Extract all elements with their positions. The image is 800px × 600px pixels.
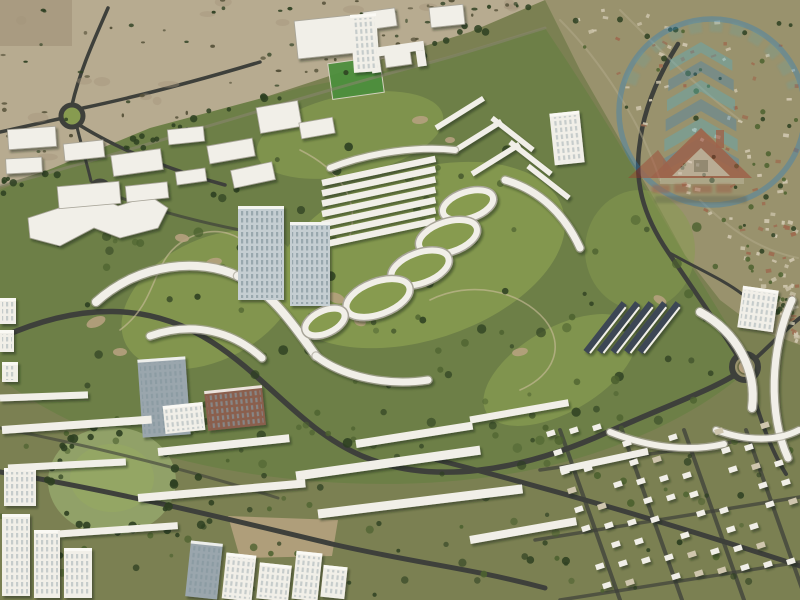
tree xyxy=(527,392,531,396)
tree xyxy=(42,170,49,177)
script-blob xyxy=(674,184,688,193)
desert-shrub xyxy=(175,116,178,118)
tree xyxy=(704,493,709,498)
tree xyxy=(756,472,761,477)
warehouse-building xyxy=(6,157,43,174)
tree xyxy=(573,18,579,24)
villa-roof xyxy=(601,9,605,13)
tree xyxy=(44,476,51,483)
tree xyxy=(759,249,764,254)
tree xyxy=(207,518,213,524)
tree xyxy=(746,245,749,248)
tree xyxy=(366,526,374,534)
desert-shrub xyxy=(78,71,84,74)
tree xyxy=(437,367,443,373)
tree xyxy=(278,345,288,355)
tree xyxy=(297,206,305,214)
house-window xyxy=(694,160,708,172)
tree xyxy=(568,578,574,584)
tree xyxy=(167,296,173,302)
villa-roof xyxy=(757,174,762,177)
tree xyxy=(752,163,755,166)
tree xyxy=(251,370,260,379)
tree xyxy=(513,443,523,453)
tree xyxy=(692,222,702,232)
desert-shrub xyxy=(334,58,337,61)
desert-shrub xyxy=(23,61,27,63)
tree xyxy=(372,593,376,597)
desert-shrub xyxy=(84,75,90,78)
tree xyxy=(54,171,61,178)
tree xyxy=(583,45,586,48)
tree xyxy=(314,410,320,416)
tree xyxy=(684,289,693,298)
villa-roof xyxy=(762,202,766,205)
desert-shrub xyxy=(41,111,47,113)
tree xyxy=(764,163,769,168)
tree xyxy=(698,498,705,505)
villa-roof xyxy=(795,284,799,288)
desert-shrub xyxy=(110,27,113,30)
tree xyxy=(103,264,110,271)
tree xyxy=(743,224,746,227)
tree xyxy=(250,544,258,552)
tree xyxy=(150,137,155,142)
tree xyxy=(627,499,635,507)
tree xyxy=(554,436,563,445)
desert-shrub xyxy=(260,56,265,59)
villa-roof xyxy=(656,81,661,84)
tree xyxy=(474,577,481,584)
tree xyxy=(194,294,200,300)
tree xyxy=(136,239,144,247)
tower-windows xyxy=(36,534,58,596)
desert-shrub xyxy=(440,2,445,6)
sand-patch xyxy=(153,97,162,105)
tree xyxy=(239,448,244,453)
tree xyxy=(195,473,202,480)
tree xyxy=(193,227,203,237)
tree xyxy=(171,464,179,472)
desert-shrub xyxy=(163,29,166,31)
tower-roof xyxy=(238,206,284,209)
tree xyxy=(766,151,771,156)
tree xyxy=(432,41,437,46)
tree xyxy=(396,549,400,553)
tree xyxy=(664,487,668,491)
warehouse-building xyxy=(7,126,56,149)
tree xyxy=(239,307,245,313)
tree xyxy=(589,301,594,306)
desert-shrub xyxy=(2,108,7,112)
tree xyxy=(105,246,113,254)
desert-shrub xyxy=(222,6,226,10)
tree xyxy=(482,28,490,36)
villa-roof xyxy=(781,221,784,225)
roundabout-northwest xyxy=(61,105,83,127)
tree xyxy=(343,438,353,448)
tree xyxy=(218,194,226,202)
tree xyxy=(771,233,775,237)
tree xyxy=(281,496,286,501)
tree xyxy=(439,471,444,476)
tree xyxy=(760,109,765,114)
tree xyxy=(480,571,487,578)
tree xyxy=(739,523,744,528)
tree xyxy=(267,506,272,511)
tree xyxy=(713,264,719,270)
house-facade xyxy=(660,178,744,184)
tree xyxy=(688,454,692,458)
villa-roof xyxy=(740,246,745,250)
tree xyxy=(94,350,103,359)
tree xyxy=(625,105,628,108)
tree xyxy=(175,533,180,538)
tower-windows xyxy=(2,302,14,322)
script-blob xyxy=(716,184,732,193)
tree xyxy=(592,248,598,254)
tree xyxy=(10,179,17,186)
tree xyxy=(61,445,68,452)
tree xyxy=(683,491,689,497)
desert-shrub xyxy=(141,41,145,43)
tree xyxy=(116,430,123,437)
sand-patch xyxy=(276,19,290,26)
tree xyxy=(748,264,754,270)
desert-shrub xyxy=(39,43,42,46)
tree xyxy=(530,438,535,443)
desert-shrub xyxy=(43,150,46,153)
tree xyxy=(619,426,624,431)
desert-shrub xyxy=(425,21,431,24)
villa-roof xyxy=(761,284,767,288)
desert-shrub xyxy=(427,4,430,7)
tree xyxy=(784,191,787,194)
dirt-corner xyxy=(0,0,72,46)
tower-roof xyxy=(290,222,330,225)
tree xyxy=(197,521,205,529)
tree xyxy=(64,431,69,436)
tower-windows xyxy=(352,17,378,70)
villa-roof xyxy=(770,212,775,216)
tree xyxy=(536,328,546,338)
tree xyxy=(489,422,497,430)
desert-shrub xyxy=(37,150,41,153)
tree xyxy=(708,370,714,376)
tree xyxy=(351,426,355,430)
tree xyxy=(542,540,547,545)
tree xyxy=(633,586,637,590)
tree xyxy=(601,589,605,593)
tree xyxy=(169,554,173,558)
tree xyxy=(778,272,783,277)
tree xyxy=(24,444,29,449)
tree xyxy=(661,55,667,61)
tree xyxy=(511,227,516,232)
warehouse-building xyxy=(167,126,204,145)
tree xyxy=(569,314,576,321)
tree xyxy=(552,529,560,537)
tower-windows xyxy=(165,406,203,432)
desert-shrub xyxy=(139,94,144,97)
tree xyxy=(474,25,482,33)
tower-roof xyxy=(0,330,14,333)
tower-roof xyxy=(2,362,18,365)
tree xyxy=(261,473,267,479)
tree xyxy=(554,556,559,561)
villa-roof xyxy=(729,217,732,220)
tree xyxy=(482,398,488,404)
tree xyxy=(644,227,650,233)
tree xyxy=(303,422,310,429)
tower-windows xyxy=(740,290,777,330)
tree xyxy=(84,383,90,389)
sand-patch xyxy=(16,16,26,25)
tree xyxy=(268,551,274,557)
desert-shrub xyxy=(516,4,519,7)
tree xyxy=(734,186,737,189)
tree xyxy=(163,506,168,511)
sand-patch xyxy=(158,81,180,88)
desert-shrub xyxy=(471,8,477,11)
tree xyxy=(545,513,549,517)
tree xyxy=(492,432,498,438)
tree xyxy=(419,317,426,324)
tree xyxy=(140,145,146,151)
desert-shrub xyxy=(494,9,498,11)
tree xyxy=(401,576,409,584)
tree xyxy=(510,344,514,348)
sand-patch xyxy=(343,5,364,13)
tree xyxy=(69,444,74,449)
tree xyxy=(543,460,550,467)
tree xyxy=(631,215,641,225)
desert-shrub xyxy=(64,118,68,122)
tree xyxy=(445,371,452,378)
tree xyxy=(2,177,8,183)
tree xyxy=(457,29,463,35)
tree xyxy=(147,532,153,538)
tree xyxy=(277,96,281,100)
desert-shrub xyxy=(184,41,188,43)
tree xyxy=(763,194,769,200)
tower-windows xyxy=(292,226,328,304)
villa-roof xyxy=(593,29,597,31)
tree xyxy=(87,434,93,440)
tree xyxy=(113,239,118,244)
tree xyxy=(317,484,324,491)
tower-windows xyxy=(206,389,263,428)
tree xyxy=(730,573,736,579)
tower-roof xyxy=(2,514,30,517)
tree xyxy=(777,21,782,26)
tower-windows xyxy=(224,557,254,599)
tree xyxy=(64,511,69,516)
tree xyxy=(665,356,672,363)
desert-shrub xyxy=(276,70,282,73)
desert-shrub xyxy=(129,24,134,28)
desert-shrub xyxy=(84,31,88,35)
desert-shrub xyxy=(382,34,385,36)
desert-shrub xyxy=(395,35,399,38)
tree xyxy=(781,297,785,301)
tree xyxy=(535,436,544,445)
tree xyxy=(133,564,140,571)
tree xyxy=(745,578,752,585)
tree xyxy=(130,135,137,142)
tree xyxy=(644,34,650,40)
villa-roof xyxy=(775,160,780,164)
sand-patch xyxy=(94,77,110,86)
tree xyxy=(1,190,7,196)
desert-shrub xyxy=(314,69,318,73)
fairway xyxy=(585,190,695,310)
tree xyxy=(611,375,620,384)
desert-shrub xyxy=(0,54,5,56)
tower-windows xyxy=(6,472,34,504)
desert-shrub xyxy=(267,53,271,57)
desert-shrub xyxy=(405,19,408,23)
tower-roof xyxy=(64,548,92,551)
tree xyxy=(443,37,450,44)
tree xyxy=(782,178,786,182)
desert-shrub xyxy=(210,45,215,48)
tree xyxy=(737,492,744,499)
tree xyxy=(458,173,464,179)
desert-shrub xyxy=(322,1,326,4)
tree xyxy=(306,502,312,508)
tree xyxy=(76,521,83,528)
desert-shrub xyxy=(287,7,292,11)
desert-shrub xyxy=(471,14,473,17)
warehouse-building xyxy=(63,140,105,161)
sand-patch xyxy=(28,113,49,123)
tree xyxy=(380,409,386,415)
desert-shrub xyxy=(186,111,188,115)
tower-windows xyxy=(2,334,12,350)
tree xyxy=(755,124,760,129)
villa-roof xyxy=(659,64,663,68)
tree xyxy=(443,542,448,547)
villa-roof xyxy=(625,86,629,88)
tree xyxy=(419,444,424,449)
tree xyxy=(739,225,743,229)
desert-shrub xyxy=(487,5,491,9)
desert-shrub xyxy=(305,71,308,73)
tree xyxy=(722,218,727,223)
tree xyxy=(583,292,587,296)
tree xyxy=(19,183,24,188)
desert-shrub xyxy=(505,3,509,6)
tree xyxy=(690,397,697,404)
tree xyxy=(672,259,682,269)
tree xyxy=(745,257,750,262)
tree xyxy=(67,435,74,442)
tree xyxy=(139,133,145,139)
tree xyxy=(677,539,683,545)
desert-shrub xyxy=(69,134,73,138)
tree xyxy=(277,542,281,546)
tower-windows xyxy=(240,210,282,298)
tower-windows xyxy=(258,567,289,600)
tree xyxy=(172,123,176,127)
tree xyxy=(542,425,548,431)
desert-shrub xyxy=(41,9,46,12)
villa-roof xyxy=(787,98,792,101)
tower-windows xyxy=(66,552,90,596)
tree xyxy=(391,328,396,333)
tree xyxy=(646,548,650,552)
tree xyxy=(571,407,580,416)
villa-roof xyxy=(764,219,769,223)
tower-roof xyxy=(0,298,16,301)
villa-roof xyxy=(765,228,769,231)
tree xyxy=(510,518,517,525)
tree xyxy=(593,406,600,413)
villa-roof xyxy=(759,278,762,281)
tree xyxy=(529,412,536,419)
tree xyxy=(616,414,623,421)
tree xyxy=(184,535,191,542)
desert-shrub xyxy=(278,10,282,12)
tree xyxy=(787,124,791,128)
tree xyxy=(617,17,623,23)
tree xyxy=(226,459,230,463)
tree xyxy=(778,183,783,188)
tree xyxy=(684,458,692,466)
tree xyxy=(325,431,331,437)
tree xyxy=(613,391,618,396)
tree xyxy=(258,460,267,469)
desert-shrub xyxy=(275,85,280,87)
tree xyxy=(227,107,232,112)
tree xyxy=(777,296,780,299)
tree xyxy=(206,108,211,113)
tree xyxy=(761,117,765,121)
tree xyxy=(499,330,504,335)
tower-roof xyxy=(34,530,60,533)
desert-shrub xyxy=(355,0,359,2)
tree xyxy=(209,500,215,506)
tree xyxy=(477,324,486,333)
desert-shrub xyxy=(2,102,8,104)
tree xyxy=(261,94,269,102)
tree xyxy=(760,59,765,64)
tree xyxy=(460,525,464,529)
tree xyxy=(170,480,179,489)
scene-svg: Aerial master-plan render xyxy=(0,0,800,600)
villa-roof xyxy=(723,42,727,45)
tree xyxy=(85,302,90,307)
tree xyxy=(58,474,63,479)
sand-patch xyxy=(77,77,92,84)
warehouse-building xyxy=(294,15,356,59)
script-blob xyxy=(652,185,670,193)
tree xyxy=(794,118,798,122)
tree xyxy=(247,507,253,513)
villa-roof xyxy=(747,155,751,159)
tree xyxy=(502,288,509,295)
tree xyxy=(594,472,601,479)
tree xyxy=(296,425,302,431)
tree xyxy=(435,165,441,171)
desert-shrub xyxy=(126,100,130,103)
script-blob xyxy=(692,185,712,193)
tree xyxy=(525,4,531,10)
tree xyxy=(427,418,436,427)
tree xyxy=(654,416,663,425)
tree xyxy=(211,192,217,198)
